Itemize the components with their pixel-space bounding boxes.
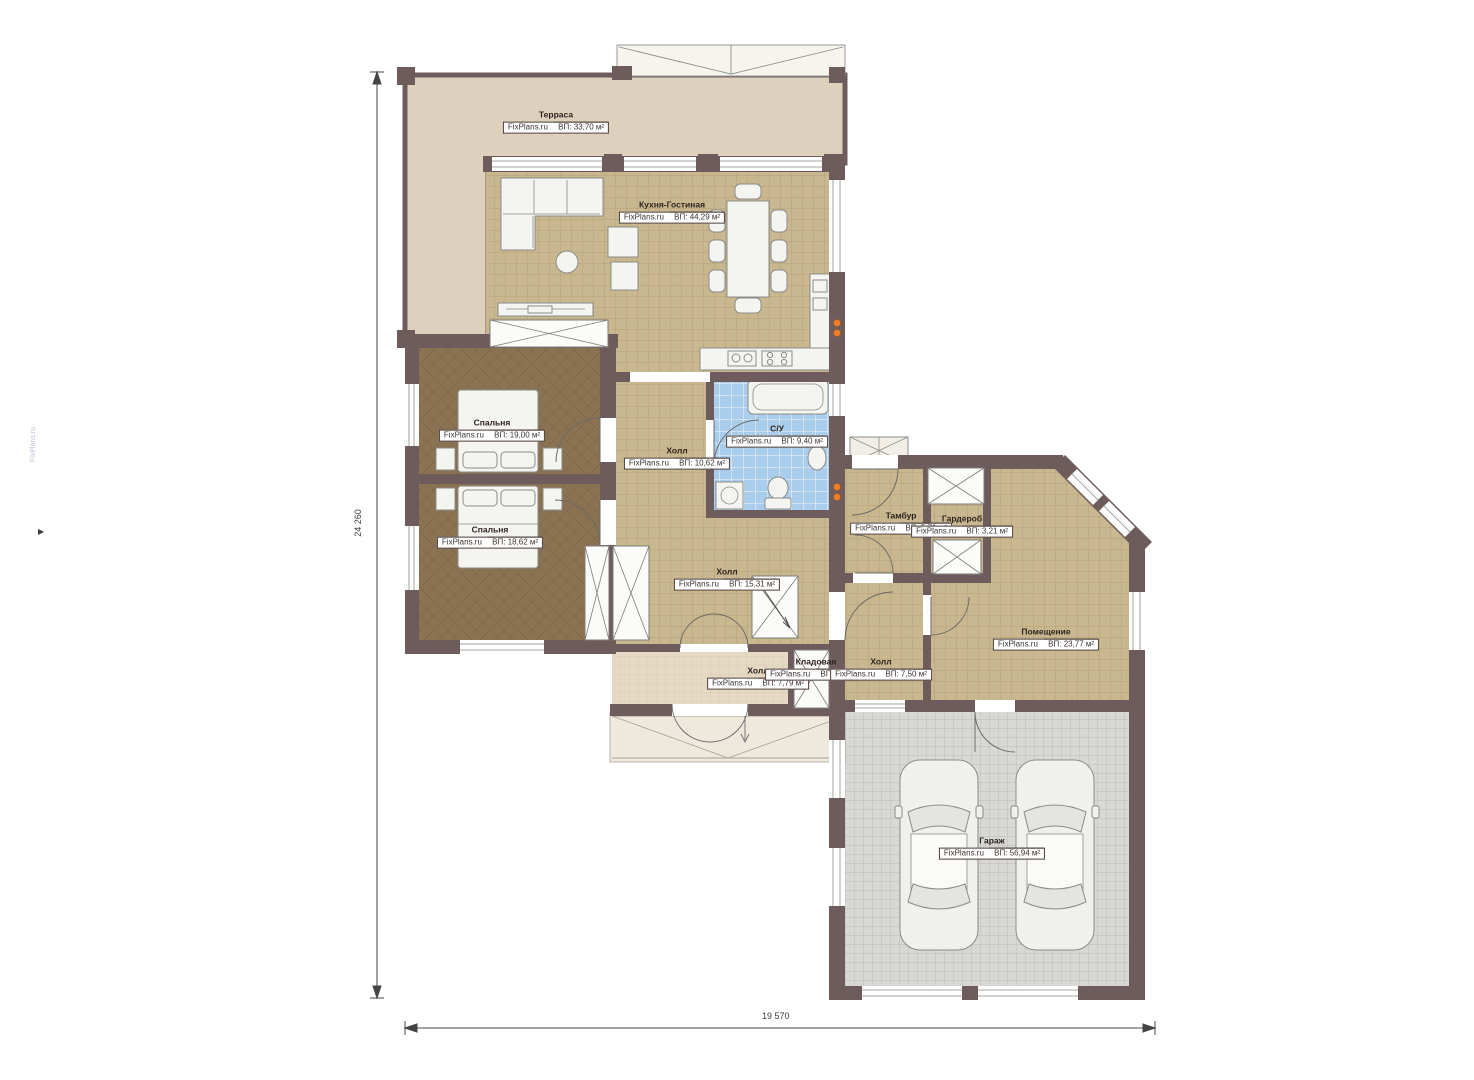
appliance — [813, 280, 827, 292]
room-label-bedroom-1: Спальня FixPlans.ru ВП: 19,00 м² — [439, 419, 545, 442]
room-info-box: FixPlans.ru ВП: 9,40 м² — [726, 435, 828, 447]
toilet-bowl — [768, 477, 788, 499]
closet — [933, 540, 981, 574]
washer — [716, 482, 743, 509]
dimension-label-vertical: 24 260 — [353, 509, 363, 537]
chair — [735, 298, 761, 313]
chair — [709, 270, 725, 292]
nightstand — [543, 448, 562, 470]
room-area: ВП: 44,29 м² — [670, 211, 724, 221]
room-label-hall-2: Холл FixPlans.ru ВП: 15,31 м² — [674, 568, 780, 591]
floor-plan-canvas: Терраса FixPlans.ru ВП: 33,70 м² Кухня-Г… — [0, 0, 1474, 1080]
room-brand: FixPlans.ru — [620, 212, 668, 221]
room-brand: FixPlans.ru — [851, 523, 899, 532]
post — [604, 154, 622, 172]
post — [824, 154, 845, 172]
room-brand: FixPlans.ru — [831, 669, 879, 678]
room-name: Терраса — [539, 111, 573, 121]
room-label-utility-room: Помещение FixPlans.ru ВП: 23,77 м² — [993, 628, 1099, 651]
room-area: ВП: 19,00 м² — [490, 429, 544, 439]
room-info-box: FixPlans.ru ВП: 23,77 м² — [993, 638, 1099, 650]
stove — [762, 351, 792, 366]
room-info-box: FixPlans.ru ВП: 10,62 м² — [624, 457, 730, 469]
room-brand: FixPlans.ru — [438, 537, 486, 546]
room-info-box: FixPlans.ru ВП: 33,70 м² — [503, 121, 609, 133]
room-label-hall-3: Холл FixPlans.ru ВП: 7,50 м² — [830, 658, 932, 681]
room-name: Спальня — [472, 526, 509, 536]
entry-porch — [610, 712, 845, 762]
room-name: Кухня-Гостиная — [639, 201, 705, 211]
room-area: ВП: 7,50 м² — [881, 668, 931, 678]
nightstand — [436, 448, 455, 470]
closet — [613, 546, 649, 640]
room-info-box: FixPlans.ru ВП: 7,50 м² — [830, 668, 932, 680]
nightstand — [436, 488, 455, 510]
post — [829, 67, 845, 83]
room-label-hall-1: Холл FixPlans.ru ВП: 10,62 м² — [624, 447, 730, 470]
coffee-table-1 — [608, 227, 638, 257]
chair — [771, 240, 787, 262]
room-label-wardrobe: Гардероб FixPlans.ru ВП: 3,21 м² — [911, 515, 1013, 538]
room-brand: FixPlans.ru — [675, 579, 723, 588]
room-area: ВП: 33,70 м² — [554, 121, 608, 131]
room-area: ВП: 9,40 м² — [777, 435, 827, 445]
room-info-box: FixPlans.ru ВП: 15,31 м² — [674, 578, 780, 590]
chair — [771, 270, 787, 292]
side-table — [556, 251, 578, 273]
closet — [928, 468, 984, 504]
appliance — [813, 298, 827, 310]
post — [612, 66, 632, 80]
room-brand: FixPlans.ru — [440, 430, 488, 439]
closet — [585, 546, 609, 640]
room-name: Гараж — [979, 837, 1004, 847]
room-name: С/У — [770, 425, 784, 435]
room-brand: FixPlans.ru — [994, 639, 1042, 648]
room-name: Помещение — [1021, 628, 1070, 638]
dimension-label-horizontal: 19 570 — [762, 1011, 790, 1021]
room-brand: FixPlans.ru — [625, 458, 673, 467]
chair — [735, 184, 761, 199]
room-name: Холл — [870, 658, 891, 668]
chair — [771, 210, 787, 232]
room-name: Холл — [716, 568, 737, 578]
watermark-text: FixPlans.ru — [30, 427, 37, 462]
room-info-box: FixPlans.ru ВП: 44,29 м² — [619, 211, 725, 223]
room-brand: FixPlans.ru — [912, 526, 960, 535]
room-brand: FixPlans.ru — [727, 436, 775, 445]
room-area: ВП: 10,62 м² — [675, 457, 729, 467]
room-area: ВП: 23,77 м² — [1044, 638, 1098, 648]
coffee-table-2 — [611, 262, 638, 290]
room-info-box: FixPlans.ru ВП: 18,62 м² — [437, 536, 543, 548]
pillow — [501, 490, 535, 506]
room-label-garage: Гараж FixPlans.ru ВП: 56,94 м² — [939, 837, 1045, 860]
room-label-kitchen-living: Кухня-Гостиная FixPlans.ru ВП: 44,29 м² — [619, 201, 725, 224]
floor-plan-drawing — [0, 0, 1474, 1080]
room-name: Холл — [666, 447, 687, 457]
pillow — [463, 452, 497, 468]
post — [698, 154, 718, 172]
room-area: ВП: 18,62 м² — [488, 536, 542, 546]
tv — [528, 306, 552, 313]
room-label-bathroom: С/У FixPlans.ru ВП: 9,40 м² — [726, 425, 828, 448]
room-area: ВП: 56,94 м² — [990, 847, 1044, 857]
room-brand: FixPlans.ru — [940, 848, 988, 857]
closet — [490, 320, 608, 347]
nightstand — [543, 488, 562, 510]
toilet-tank — [765, 498, 791, 509]
bathtub — [748, 380, 828, 414]
pillow — [501, 452, 535, 468]
room-area: ВП: 3,21 м² — [962, 525, 1012, 535]
room-area: ВП: 15,31 м² — [725, 578, 779, 588]
room-label-terrace: Терраса FixPlans.ru ВП: 33,70 м² — [503, 111, 609, 134]
chair — [709, 240, 725, 262]
room-label-bedroom-2: Спальня FixPlans.ru ВП: 18,62 м² — [437, 526, 543, 549]
room-brand: FixPlans.ru — [766, 669, 814, 678]
post — [397, 330, 415, 348]
wash-basin — [808, 446, 826, 470]
room-info-box: FixPlans.ru ВП: 19,00 м² — [439, 429, 545, 441]
pillow — [463, 490, 497, 506]
room-name: Гардероб — [942, 515, 982, 525]
post — [397, 67, 415, 85]
room-brand: FixPlans.ru — [504, 122, 552, 131]
room-info-box: FixPlans.ru ВП: 3,21 м² — [911, 525, 1013, 537]
room-brand: FixPlans.ru — [708, 678, 756, 687]
watermark-arrow-icon: ▶ — [38, 527, 44, 536]
dining-table — [727, 201, 769, 297]
room-name: Спальня — [474, 419, 511, 429]
room-info-box: FixPlans.ru ВП: 56,94 м² — [939, 847, 1045, 859]
